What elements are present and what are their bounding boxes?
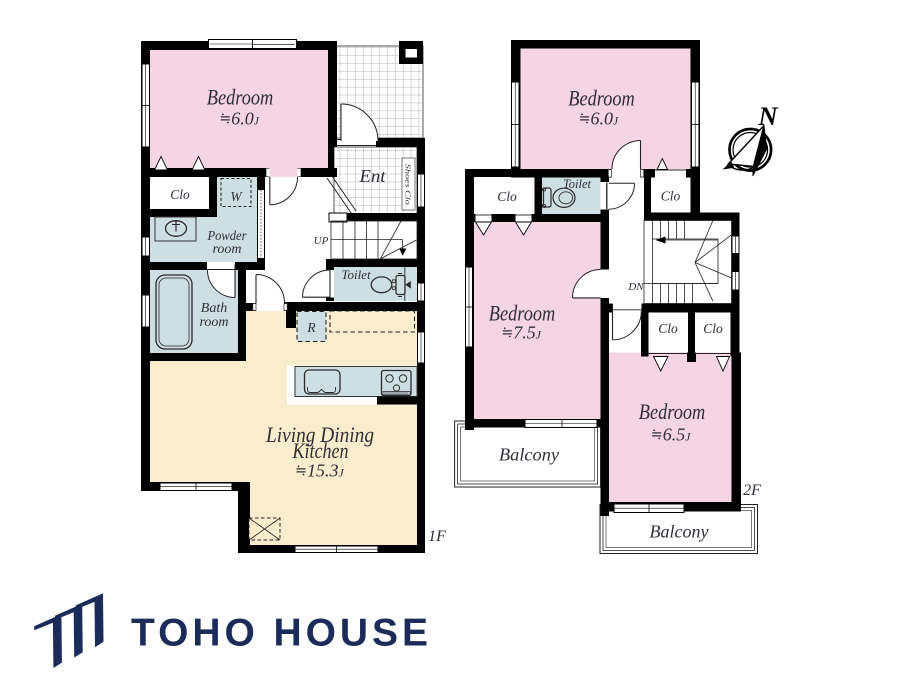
svg-text:Balcony: Balcony	[499, 445, 559, 465]
svg-text:W: W	[230, 189, 243, 204]
svg-text:room: room	[199, 315, 228, 330]
svg-text:UP: UP	[314, 235, 329, 247]
svg-text:R: R	[306, 320, 316, 335]
svg-text:DN: DN	[627, 281, 644, 293]
svg-text:room: room	[212, 242, 241, 257]
svg-text:TOHO HOUSE: TOHO HOUSE	[131, 612, 428, 655]
svg-text:Toilet: Toilet	[341, 267, 371, 282]
svg-text:Ent: Ent	[358, 166, 386, 186]
svg-text:Clo: Clo	[661, 189, 681, 204]
svg-text:Clo: Clo	[497, 189, 517, 204]
svg-text:Bedroom: Bedroom	[639, 399, 706, 424]
svg-text:Bedroom: Bedroom	[568, 86, 635, 111]
svg-text:Clo: Clo	[703, 321, 723, 336]
svg-text:1F: 1F	[428, 528, 446, 545]
svg-text:Bedroom: Bedroom	[207, 85, 274, 110]
svg-text:Bath: Bath	[201, 301, 227, 316]
svg-text:2F: 2F	[743, 482, 761, 499]
svg-text:Kitchen: Kitchen	[292, 438, 349, 463]
svg-text:Balcony: Balcony	[650, 522, 709, 542]
svg-text:Clo: Clo	[658, 321, 678, 336]
svg-text:N: N	[757, 101, 778, 131]
svg-text:Toilet: Toilet	[563, 177, 592, 191]
svg-text:Clo: Clo	[170, 187, 190, 202]
svg-text:Shoes Clo: Shoes Clo	[404, 164, 412, 206]
